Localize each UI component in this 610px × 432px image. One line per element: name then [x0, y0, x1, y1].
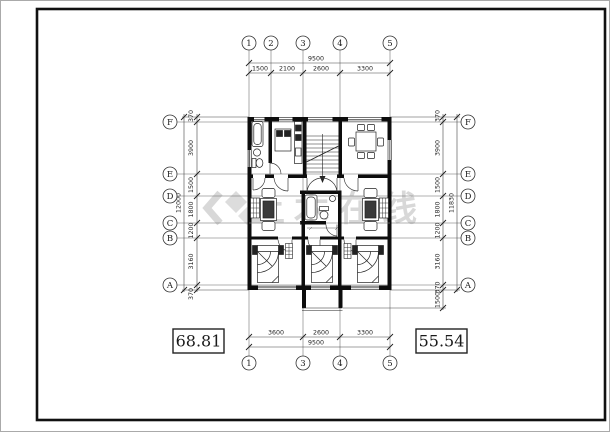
stove-icon — [296, 135, 302, 141]
toilet-icon — [252, 159, 256, 168]
axis-top-4: 4 — [337, 39, 342, 49]
dim-top-seg: 1500 — [252, 66, 268, 73]
dim-top-seg: 3300 — [357, 66, 373, 73]
toilet-icon — [320, 207, 329, 211]
toilet-icon — [320, 211, 328, 219]
dim-bottom-seg: 3600 — [268, 330, 284, 337]
axis-right-E: E — [465, 170, 471, 180]
axis-left-F: F — [167, 118, 173, 128]
dim-bottom-seg: 2600 — [313, 330, 329, 337]
chair-icon — [378, 138, 384, 146]
dim-left-seg: 370 — [188, 110, 195, 122]
dim-right-seg: 370 — [435, 281, 442, 293]
dim-left-seg: 3900 — [188, 140, 195, 156]
axis-top-3: 3 — [300, 39, 305, 49]
bathtub-icon — [307, 197, 315, 218]
axis-left-E: E — [167, 170, 173, 180]
dim-bottom-seg: 3300 — [357, 330, 373, 337]
bedrooms — [253, 244, 384, 283]
dim-right-seg: 1800 — [435, 201, 442, 217]
floor-plan-canvas: 土木在线 9500 1500 2100 — [0, 0, 610, 432]
area-value-right: 55.54 — [419, 332, 465, 351]
chair-icon — [358, 153, 365, 159]
axis-bottom-3: 3 — [300, 359, 305, 369]
axis-left-C: C — [167, 219, 174, 229]
desk-icon — [263, 201, 274, 218]
chair-icon — [262, 189, 275, 198]
desk-icon — [365, 201, 376, 218]
dim-right-seg: 1500 — [435, 177, 442, 193]
dim-top-seg: 2600 — [313, 66, 329, 73]
axis-right-B: B — [465, 234, 471, 244]
dim-right-seg: 370 — [435, 110, 442, 122]
axis-bottom-4: 4 — [337, 359, 342, 369]
dim-left-seg: 370 — [188, 288, 195, 300]
axis-top-2: 2 — [268, 39, 273, 49]
bathtub-icon — [254, 124, 261, 145]
dim-left-seg: 1800 — [188, 201, 195, 217]
burner-icon — [277, 131, 283, 137]
dim-top-total: 9500 — [308, 56, 324, 63]
axis-right-D: D — [465, 192, 472, 202]
axis-bottom-1: 1 — [246, 359, 251, 369]
chair-icon — [358, 125, 365, 131]
sink-icon — [330, 196, 336, 202]
dim-left-seg: 3160 — [188, 253, 195, 269]
dim-right-seg: 1500 — [435, 292, 442, 308]
chair-icon — [368, 125, 375, 131]
axis-right-F: F — [465, 118, 471, 128]
axis-left-D: D — [167, 192, 174, 202]
kitchen-sink-icon — [296, 148, 302, 156]
area-value-left: 68.81 — [176, 332, 222, 351]
toilet-icon — [256, 159, 263, 168]
chair-icon — [349, 138, 355, 146]
axis-top-1: 1 — [246, 39, 251, 49]
dim-right-seg: 3900 — [435, 140, 442, 156]
sink-icon — [253, 149, 260, 156]
stove-icon — [296, 125, 302, 131]
dim-top-seg: 2100 — [279, 66, 295, 73]
axis-right-C: C — [465, 219, 472, 229]
dining-table — [356, 132, 376, 151]
dim-bottom-total: 9500 — [308, 340, 324, 347]
chair-icon — [364, 222, 377, 231]
cad-floor-plan-page: 土木在线 9500 1500 2100 — [0, 0, 610, 432]
dim-right-seg: 1200 — [435, 222, 442, 238]
dim-right-total: 11830 — [449, 193, 456, 213]
chair-icon — [368, 153, 375, 159]
axis-left-A: A — [166, 281, 174, 291]
chair-icon — [364, 189, 377, 198]
burner-icon — [285, 131, 291, 137]
axis-left-B: B — [167, 234, 173, 244]
dim-left-seg: 1500 — [188, 177, 195, 193]
chair-icon — [262, 222, 275, 231]
bathroom-1 — [252, 122, 263, 168]
axis-right-A: A — [464, 281, 472, 291]
axis-bottom-5: 5 — [387, 359, 392, 369]
dim-right-seg: 3160 — [435, 253, 442, 269]
axis-top-5: 5 — [387, 39, 392, 49]
dim-left-seg: 1200 — [188, 222, 195, 238]
